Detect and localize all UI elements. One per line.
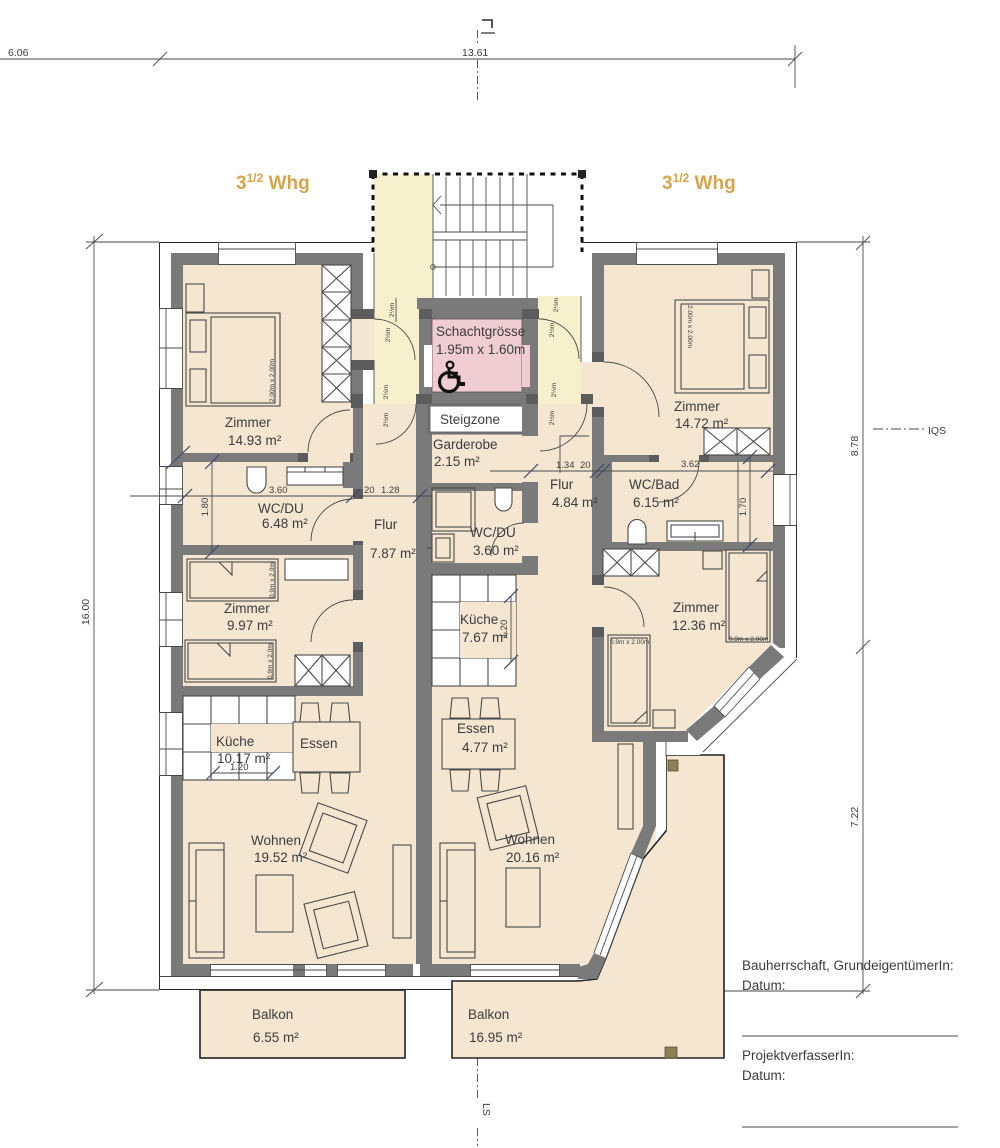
svg-text:8.78: 8.78 xyxy=(849,436,861,457)
svg-text:2.15 m²: 2.15 m² xyxy=(434,454,480,469)
svg-text:6.48 m²: 6.48 m² xyxy=(262,516,308,531)
svg-text:Schachtgrösse: Schachtgrösse xyxy=(436,324,525,339)
svg-text:2½m: 2½m xyxy=(548,323,556,337)
svg-text:20.16 m²: 20.16 m² xyxy=(506,850,560,865)
svg-text:7.67 m²: 7.67 m² xyxy=(462,630,508,645)
svg-text:2.00m x 2.00m: 2.00m x 2.00m xyxy=(269,359,276,402)
svg-text:1.28: 1.28 xyxy=(381,485,400,496)
svg-text:4.77 m²: 4.77 m² xyxy=(462,740,508,755)
svg-text:Datum:: Datum: xyxy=(742,1068,786,1083)
svg-text:6.55 m²: 6.55 m² xyxy=(253,1030,299,1045)
svg-text:Garderobe: Garderobe xyxy=(433,437,498,452)
svg-text:1.95m x 1.60m: 1.95m x 1.60m xyxy=(436,342,525,357)
svg-text:Bauherrschaft, Grundeigentümer: Bauherrschaft, GrundeigentümerIn: xyxy=(742,958,954,973)
svg-text:Steigzone: Steigzone xyxy=(440,412,500,427)
svg-text:0.9m x 2.0m: 0.9m x 2.0m xyxy=(269,562,276,598)
svg-text:2½m: 2½m xyxy=(388,303,396,317)
svg-text:7.22: 7.22 xyxy=(849,807,861,828)
svg-text:Balkon: Balkon xyxy=(252,1007,293,1022)
svg-text:LS: LS xyxy=(480,1103,492,1116)
svg-text:20: 20 xyxy=(580,460,591,471)
svg-text:3.60: 3.60 xyxy=(269,485,288,496)
svg-text:Flur: Flur xyxy=(550,477,574,492)
svg-text:0.9m x 2.0m: 0.9m x 2.0m xyxy=(267,643,274,679)
svg-text:20: 20 xyxy=(364,485,375,496)
svg-text:10.17 m²: 10.17 m² xyxy=(217,751,271,766)
svg-text:3.60 m²: 3.60 m² xyxy=(473,543,519,558)
svg-text:6.15 m²: 6.15 m² xyxy=(633,495,679,510)
svg-text:2½m: 2½m xyxy=(548,411,556,425)
svg-text:WC/Bad: WC/Bad xyxy=(629,477,679,492)
svg-text:Balkon: Balkon xyxy=(468,1007,509,1022)
svg-text:Flur: Flur xyxy=(374,517,398,532)
svg-text:6.06: 6.06 xyxy=(8,47,29,59)
svg-text:Wohnen: Wohnen xyxy=(505,832,555,847)
svg-text:Essen: Essen xyxy=(300,736,338,751)
svg-text:IQS: IQS xyxy=(928,425,946,437)
svg-text:7.87 m²: 7.87 m² xyxy=(370,546,416,561)
svg-text:2.00m x 2.00m: 2.00m x 2.00m xyxy=(686,305,693,348)
svg-text:Küche: Küche xyxy=(216,734,254,749)
svg-text:Zimmer: Zimmer xyxy=(224,601,270,616)
svg-text:Zimmer: Zimmer xyxy=(225,415,271,430)
svg-text:14.72 m²: 14.72 m² xyxy=(675,416,729,431)
svg-text:2½m: 2½m xyxy=(552,298,560,312)
svg-text:2½m: 2½m xyxy=(382,385,390,399)
svg-text:WC/DU: WC/DU xyxy=(258,501,304,516)
svg-text:Zimmer: Zimmer xyxy=(674,399,720,414)
svg-text:3.62: 3.62 xyxy=(681,459,700,470)
svg-text:1.80: 1.80 xyxy=(200,498,211,517)
svg-text:19.52 m²: 19.52 m² xyxy=(254,850,308,865)
svg-text:Essen: Essen xyxy=(457,721,495,736)
svg-text:2½m: 2½m xyxy=(384,328,392,342)
svg-text:4.84 m²: 4.84 m² xyxy=(552,495,598,510)
svg-text:1.34: 1.34 xyxy=(556,460,575,471)
svg-text:ProjektverfasserIn:: ProjektverfasserIn: xyxy=(742,1048,855,1063)
svg-text:0.9m x 2.00m: 0.9m x 2.00m xyxy=(729,636,768,643)
svg-text:9.97 m²: 9.97 m² xyxy=(227,618,273,633)
svg-text:Küche: Küche xyxy=(460,612,498,627)
svg-text:13.61: 13.61 xyxy=(462,47,488,59)
svg-text:16.95 m²: 16.95 m² xyxy=(469,1030,523,1045)
svg-text:Zimmer: Zimmer xyxy=(673,600,719,615)
svg-text:WC/DU: WC/DU xyxy=(470,525,516,540)
svg-text:2½m: 2½m xyxy=(382,413,390,427)
svg-text:0.9m x 2.00m: 0.9m x 2.00m xyxy=(610,639,649,646)
svg-text:12.36 m²: 12.36 m² xyxy=(672,618,726,633)
svg-text:Datum:: Datum: xyxy=(742,978,786,993)
svg-text:16.00: 16.00 xyxy=(80,599,92,625)
svg-text:14.93 m²: 14.93 m² xyxy=(228,433,282,448)
svg-text:1.70: 1.70 xyxy=(738,498,749,517)
svg-text:2½m: 2½m xyxy=(550,383,558,397)
svg-text:Wohnen: Wohnen xyxy=(251,833,301,848)
